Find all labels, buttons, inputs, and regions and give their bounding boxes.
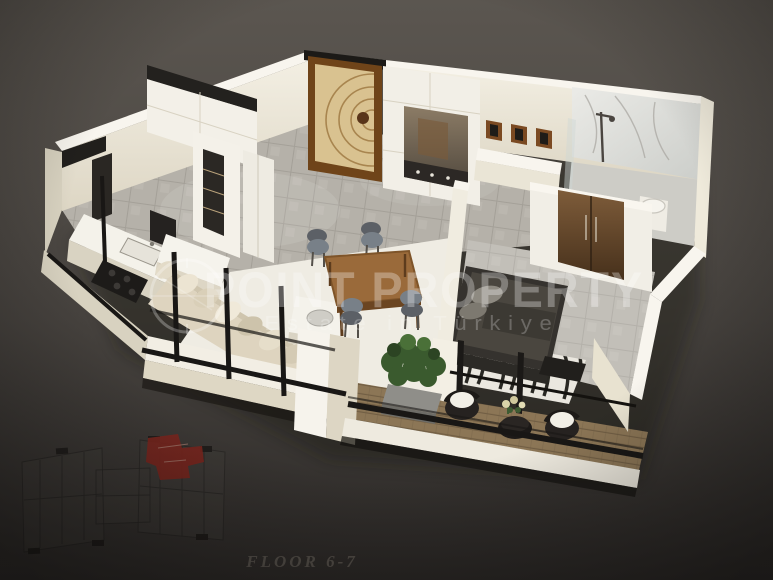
wicker-chair bbox=[545, 412, 579, 440]
real-estate-floorplan-image: POINT PROPERTY Estate in Türkiye FLOOR 6… bbox=[0, 0, 773, 580]
watermark-brand: POINT PROPERTY bbox=[204, 262, 644, 318]
door-knob bbox=[357, 112, 369, 124]
watermark-tagline: Estate in Türkiye bbox=[265, 313, 560, 335]
kitchen-shelf-column bbox=[203, 149, 224, 236]
floor-caption: FLOOR 6-7 bbox=[245, 552, 358, 571]
